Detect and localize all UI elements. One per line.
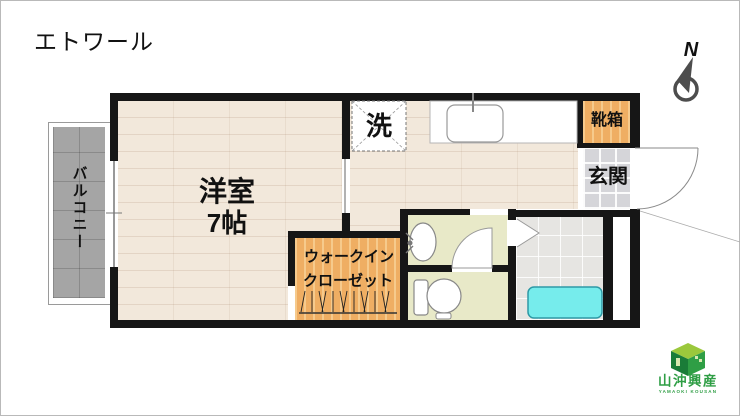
entrance-door-arc — [637, 148, 698, 209]
logo-romaji: YAMAOKI KOUSAN — [659, 390, 717, 395]
plan-symbols — [0, 0, 740, 416]
closet-label-line2: クローゼット — [303, 274, 393, 289]
washbasin — [410, 223, 436, 261]
toilet-bowl — [427, 279, 461, 313]
balcony-label: バルコニー — [72, 166, 87, 251]
annotation-line — [640, 211, 740, 242]
bath-door-opening — [507, 220, 517, 246]
logo-company-name: 山沖興産 — [658, 374, 718, 388]
floorplan-page: エトワール 洋室 7帖 洗 靴箱 玄関 バルコニー ウォークイン クローゼット … — [0, 0, 740, 416]
washbasin-faucet — [408, 241, 413, 246]
logo-cube — [671, 343, 705, 376]
toilet-base — [436, 313, 451, 319]
compass-north-label: N — [684, 40, 698, 60]
page-title: エトワール — [34, 31, 154, 54]
toilet-tank — [414, 280, 428, 315]
living-room-label: 洋室 — [199, 178, 255, 206]
shoebox-label: 靴箱 — [591, 113, 623, 129]
bath-bifold-door — [517, 219, 539, 247]
entrance-label: 玄関 — [588, 167, 628, 187]
closet-hangers — [301, 291, 389, 312]
toilet-door-swing — [452, 228, 492, 268]
closet-label-line1: ウォークイン — [304, 250, 394, 265]
living-room-size: 7帖 — [207, 210, 247, 236]
washer-label: 洗 — [366, 113, 392, 139]
kitchen-sink — [447, 105, 503, 142]
bathtub — [528, 287, 602, 318]
compass-needle — [677, 57, 693, 93]
